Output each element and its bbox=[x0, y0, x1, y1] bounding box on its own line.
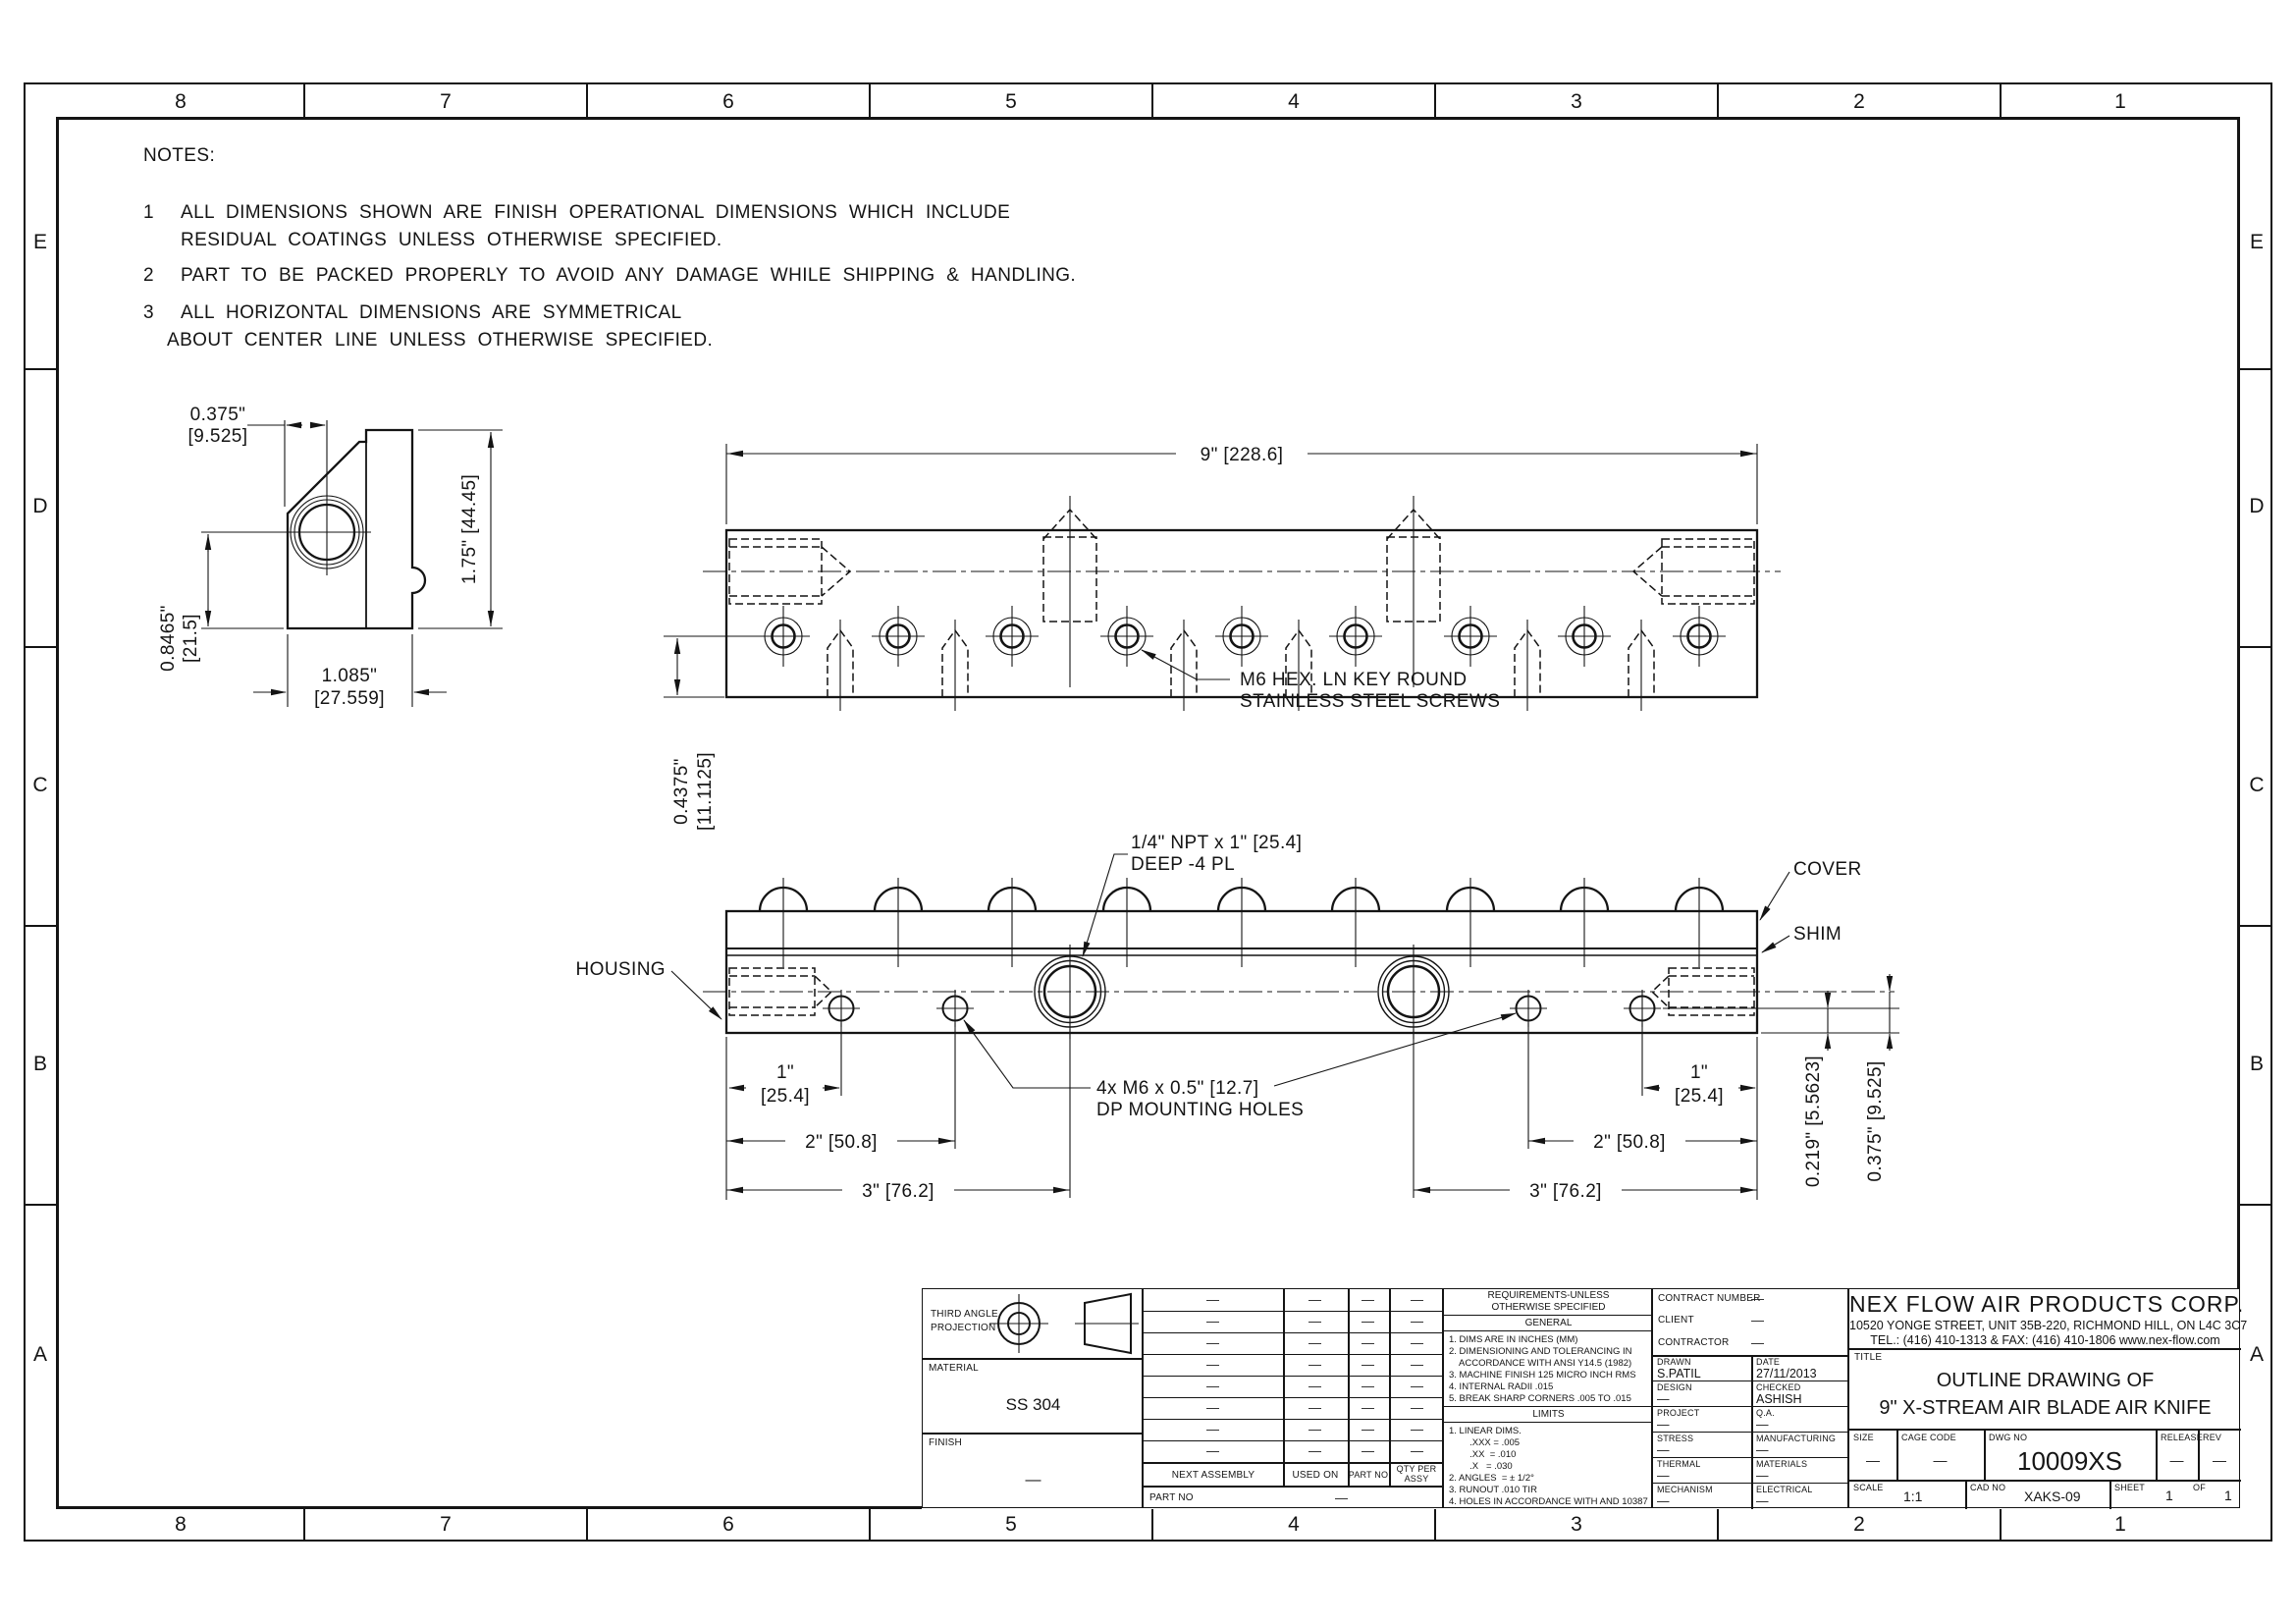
hidden-vertical-port bbox=[1043, 496, 1096, 687]
contractor-label: CONTRACTOR bbox=[1658, 1337, 1729, 1348]
qa-value: — bbox=[1756, 1418, 1769, 1432]
screw-head-bump bbox=[1218, 878, 1265, 967]
screw bbox=[1329, 606, 1382, 667]
cad-no-value: XAKS-09 bbox=[2024, 1489, 2081, 1504]
date-value: 27/11/2013 bbox=[1756, 1367, 1817, 1380]
sheet-value: 1 bbox=[2165, 1488, 2173, 1503]
cage-code-label: CAGE CODE bbox=[1901, 1433, 1956, 1442]
screw-head-bump bbox=[760, 878, 807, 967]
project-label: PROJECT bbox=[1657, 1408, 1699, 1418]
client-value: — bbox=[1751, 1313, 1764, 1327]
dim-side-left-in: 0.8465" bbox=[158, 605, 179, 672]
date-label: DATE bbox=[1756, 1357, 1780, 1367]
third-angle-projection-icon bbox=[982, 1291, 1141, 1356]
checked-value: ASHISH bbox=[1756, 1392, 1802, 1406]
parts-header-next-assembly: NEXT ASSEMBLY bbox=[1144, 1470, 1283, 1481]
dim-left-1in: 1" bbox=[776, 1062, 794, 1083]
company-block: NEX FLOW AIR PRODUCTS CORP. 10520 YONGE … bbox=[1848, 1288, 2240, 1508]
screw bbox=[757, 606, 810, 667]
finish-cell: FINISH — bbox=[922, 1434, 1143, 1508]
signoff-grid: CONTRACT NUMBER — CLIENT — CONTRACTOR — … bbox=[1652, 1288, 1848, 1508]
material-value: SS 304 bbox=[923, 1395, 1144, 1415]
material-cell: MATERIAL SS 304 bbox=[922, 1359, 1143, 1434]
screw-head-bump bbox=[1676, 878, 1723, 967]
hidden-vertical-port bbox=[1387, 496, 1440, 687]
material-label: MATERIAL bbox=[929, 1363, 979, 1374]
screw bbox=[1100, 606, 1153, 667]
size-label: SIZE bbox=[1853, 1433, 1874, 1442]
screw-head-bump bbox=[875, 878, 922, 967]
dim-side-top-in: 0.375" bbox=[190, 405, 246, 425]
dim-side-bottom-in: 1.085" bbox=[322, 666, 378, 686]
dim-left-1mm: [25.4] bbox=[761, 1086, 810, 1107]
company-contact: TEL.: (416) 410-1313 & FAX: (416) 410-18… bbox=[1849, 1333, 2241, 1347]
screw-head-bump bbox=[1103, 878, 1150, 967]
manufacturing-value: — bbox=[1756, 1443, 1769, 1457]
dim-side-bottom-mm: [27.559] bbox=[314, 688, 385, 709]
side-profile-outline bbox=[288, 430, 425, 628]
qa-label: Q.A. bbox=[1756, 1408, 1775, 1418]
mechanism-label: MECHANISM bbox=[1657, 1485, 1713, 1494]
materials-label: MATERIALS bbox=[1756, 1459, 1807, 1469]
drawing-title-line-1: OUTLINE DRAWING OF bbox=[1849, 1370, 2241, 1392]
part-no-label: PART NO bbox=[1149, 1492, 1194, 1503]
screw bbox=[1215, 606, 1268, 667]
design-value: — bbox=[1657, 1392, 1670, 1406]
projection-cell: THIRD ANGLE PROJECTION bbox=[922, 1288, 1143, 1359]
dim-right-1in: 1" bbox=[1690, 1062, 1708, 1083]
dim-overall-length: 9" [228.6] bbox=[1201, 445, 1284, 465]
scale-value: 1:1 bbox=[1903, 1489, 1922, 1504]
general-header: GENERAL bbox=[1444, 1318, 1653, 1328]
screw-note-line-2: STAINLESS STEEL SCREWS bbox=[1240, 691, 1500, 712]
checked-label: CHECKED bbox=[1756, 1382, 1800, 1392]
label-shim: SHIM bbox=[1793, 924, 1842, 945]
requirements-box: REQUIREMENTS-UNLESS OTHERWISE SPECIFIED … bbox=[1443, 1288, 1652, 1508]
screw bbox=[872, 606, 925, 667]
npt-note-line-1: 1/4" NPT x 1" [25.4] bbox=[1131, 833, 1302, 853]
drawing-sheet: 8 7 6 5 4 3 2 1 8 7 6 5 4 3 2 1 E D C B … bbox=[0, 0, 2296, 1624]
npt-note-line-2: DEEP -4 PL bbox=[1131, 854, 1235, 875]
dim-center-offset: 0.375" [9.525] bbox=[1865, 1060, 1886, 1181]
screw bbox=[1673, 606, 1726, 667]
dim-screw-offset-mm: [11.1125] bbox=[695, 752, 716, 831]
mount-note-line-2: DP MOUNTING HOLES bbox=[1096, 1100, 1304, 1120]
parts-header-qty: QTY PER ASSY bbox=[1389, 1464, 1444, 1484]
release-value: — bbox=[2156, 1452, 2198, 1468]
drawn-label: DRAWN bbox=[1657, 1357, 1691, 1367]
electrical-label: ELECTRICAL bbox=[1756, 1485, 1813, 1494]
npt-inlet-port bbox=[1378, 945, 1449, 1039]
mounting-hole bbox=[936, 990, 974, 1027]
dim-left-3: 3" [76.2] bbox=[862, 1181, 934, 1202]
screw-head-bump bbox=[1561, 878, 1608, 967]
stress-label: STRESS bbox=[1657, 1434, 1693, 1443]
manufacturing-label: MANUFACTURING bbox=[1756, 1434, 1836, 1443]
dim-screw-offset-in: 0.4375" bbox=[671, 758, 692, 825]
rev-value: — bbox=[2198, 1452, 2241, 1468]
part-no-value: — bbox=[1335, 1490, 1348, 1505]
drawing-title-line-2: 9" X-STREAM AIR BLADE AIR KNIFE bbox=[1849, 1397, 2241, 1420]
client-label: CLIENT bbox=[1658, 1315, 1694, 1326]
contract-label: CONTRACT NUMBER bbox=[1658, 1293, 1760, 1304]
dwg-no-label: DWG NO bbox=[1989, 1433, 2027, 1442]
top-view: 9" [228.6] 0.4375" [11.1125] M6 HEX. LN … bbox=[664, 444, 1781, 831]
cad-no-label: CAD NO bbox=[1970, 1483, 2005, 1492]
contract-value: — bbox=[1751, 1291, 1764, 1306]
mount-note-line-1: 4x M6 x 0.5" [12.7] bbox=[1096, 1078, 1258, 1099]
parts-usage-table: — — — — — — — — — — — — — — — — — — — — … bbox=[1143, 1288, 1443, 1508]
label-cover: COVER bbox=[1793, 859, 1862, 880]
rev-label: REV bbox=[2203, 1433, 2221, 1442]
front-view: HOUSING COVER SHIM 1/4" NPT x 1" [25.4] … bbox=[576, 833, 1899, 1202]
materials-value: — bbox=[1756, 1469, 1769, 1483]
stress-value: — bbox=[1657, 1443, 1670, 1457]
dwg-no-value: 10009XS bbox=[1984, 1446, 2156, 1477]
finish-value: — bbox=[923, 1472, 1144, 1489]
scale-label: SCALE bbox=[1853, 1483, 1884, 1492]
dim-hole-offset: 0.219" [5.5623] bbox=[1803, 1056, 1824, 1187]
screw-note-line-1: M6 HEX. LN KEY ROUND bbox=[1240, 670, 1467, 690]
contractor-value: — bbox=[1751, 1335, 1764, 1350]
of-label: OF bbox=[2193, 1483, 2206, 1492]
dim-right-1mm: [25.4] bbox=[1675, 1086, 1724, 1107]
design-label: DESIGN bbox=[1657, 1382, 1692, 1392]
requirements-title: REQUIREMENTS-UNLESS bbox=[1444, 1290, 1653, 1301]
label-housing: HOUSING bbox=[576, 959, 666, 980]
cage-code-value: — bbox=[1896, 1452, 1984, 1468]
title-label: TITLE bbox=[1854, 1352, 1882, 1363]
npt-inlet-port bbox=[1035, 945, 1105, 1039]
company-name: NEX FLOW AIR PRODUCTS CORP. bbox=[1849, 1291, 2241, 1318]
screw bbox=[1444, 606, 1497, 667]
side-view: 0.375" [9.525] 1.75" [44.45] 0.8465" [21… bbox=[158, 405, 503, 709]
electrical-value: — bbox=[1756, 1494, 1769, 1508]
thermal-label: THERMAL bbox=[1657, 1459, 1700, 1469]
screw-head-bump bbox=[1332, 878, 1379, 967]
general-item: 1. DIMS ARE IN INCHES (MM) bbox=[1449, 1334, 1577, 1346]
drawn-value: S.PATIL bbox=[1657, 1367, 1701, 1380]
dim-right-2: 2" [50.8] bbox=[1593, 1132, 1666, 1153]
project-value: — bbox=[1657, 1418, 1670, 1432]
table-dash: — bbox=[1206, 1292, 1219, 1307]
dim-side-top-mm: [9.525] bbox=[188, 426, 248, 447]
of-value: 1 bbox=[2224, 1488, 2232, 1503]
sheet-label: SHEET bbox=[2114, 1483, 2145, 1492]
screw bbox=[1558, 606, 1611, 667]
mounting-hole bbox=[1510, 990, 1547, 1027]
size-value: — bbox=[1849, 1452, 1896, 1468]
title-block: THIRD ANGLE PROJECTION MATERIAL SS 304 F… bbox=[922, 1288, 2240, 1509]
screw-head-bump bbox=[988, 878, 1036, 967]
limits-item: 1. LINEAR DIMS. bbox=[1449, 1426, 1522, 1436]
dim-side-height: 1.75" [44.45] bbox=[459, 474, 480, 584]
parts-header-used-on: USED ON bbox=[1283, 1470, 1348, 1481]
dim-right-3: 3" [76.2] bbox=[1529, 1181, 1602, 1202]
dim-side-left-mm: [21.5] bbox=[181, 614, 201, 663]
release-label: RELEASE bbox=[2161, 1433, 2203, 1442]
thermal-value: — bbox=[1657, 1469, 1670, 1483]
dim-left-2: 2" [50.8] bbox=[805, 1132, 878, 1153]
mechanism-value: — bbox=[1657, 1494, 1670, 1508]
company-address: 10520 YONGE STREET, UNIT 35B-220, RICHMO… bbox=[1849, 1319, 2241, 1332]
screw-head-bump bbox=[1447, 878, 1494, 967]
parts-header-part-no: PART NO bbox=[1348, 1470, 1389, 1480]
screw bbox=[986, 606, 1039, 667]
limits-header: LIMITS bbox=[1444, 1409, 1653, 1420]
finish-label: FINISH bbox=[929, 1437, 962, 1448]
